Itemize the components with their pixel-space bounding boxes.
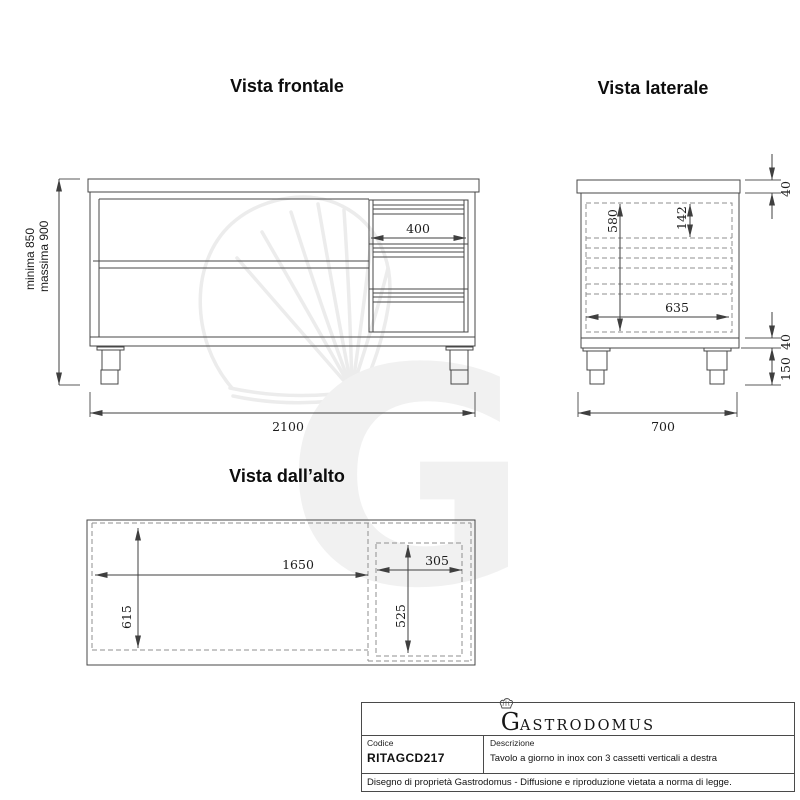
top-view-title: Vista dall’alto [229, 466, 345, 486]
dim-front-drawer-width: 400 [371, 221, 466, 238]
dim-front-drawer-width-label: 400 [406, 221, 430, 236]
front-tabletop [88, 179, 479, 192]
dim-front-height-max-label: massima 900 [37, 220, 51, 292]
side-legs [583, 348, 731, 384]
brand-initial: G [501, 708, 520, 736]
dim-side-inner-depth: 635 [586, 300, 729, 317]
dim-top-drawer-depth-label: 525 [393, 604, 408, 628]
dim-side-top-thickness: 40 [745, 154, 793, 219]
chef-hat-icon [498, 697, 514, 711]
technical-drawing-canvas: G Vista frontale Vista laterale Vista da… [0, 0, 800, 800]
dim-side-total-depth-label: 700 [651, 419, 675, 434]
brand-logo: GASTRODOMUS [362, 703, 794, 736]
dim-side-top-thickness-label: 40 [778, 181, 793, 197]
dim-top-open-width-label: 1650 [282, 557, 314, 572]
dim-top-open-depth: 615 [119, 528, 138, 648]
description-label: Descrizione [490, 738, 789, 748]
dim-side-drawer-height-label: 142 [674, 206, 689, 230]
code-cell: Codice RITAGCD217 [362, 736, 484, 773]
dim-front-total-width-label: 2100 [272, 419, 304, 434]
code-value: RITAGCD217 [367, 751, 478, 765]
watermark: G [200, 197, 530, 654]
dim-front-height: minima 850 massima 900 [23, 179, 80, 385]
brand-name: ASTRODOMUS [520, 718, 655, 734]
dim-side-leg-height-label: 150 [778, 357, 793, 381]
dim-side-inner-height-label: 580 [605, 209, 620, 233]
description-cell: Descrizione Tavolo a giorno in inox con … [484, 736, 794, 773]
code-label: Codice [367, 738, 478, 748]
title-block: GASTRODOMUS Codice RITAGCD217 Descrizion… [361, 702, 795, 792]
dim-side-leg-height: 150 [745, 348, 793, 385]
side-view-title: Vista laterale [598, 78, 709, 98]
side-tabletop [577, 180, 740, 193]
dim-top-drawer-width-label: 305 [425, 553, 449, 568]
copyright-footer: Disegno di proprietà Gastrodomus - Diffu… [362, 774, 794, 791]
dim-side-inner-depth-label: 635 [665, 300, 689, 315]
description-value: Tavolo a giorno in inox con 3 cassetti v… [490, 753, 789, 764]
dim-top-open-depth-label: 615 [119, 605, 134, 629]
title-block-fields: Codice RITAGCD217 Descrizione Tavolo a g… [362, 736, 794, 774]
dim-side-plinth-height-label: 40 [778, 334, 793, 350]
dim-side-drawer-height: 142 [674, 204, 690, 237]
side-view: 580 142 635 40 40 150 [577, 154, 793, 434]
front-view-title: Vista frontale [230, 76, 344, 96]
dim-front-height-min-label: minima 850 [23, 228, 37, 290]
dim-side-total-depth: 700 [578, 392, 737, 434]
technical-drawing-sheet: G Vista frontale Vista laterale Vista da… [0, 0, 800, 800]
dim-side-plinth-height: 40 [741, 312, 793, 350]
